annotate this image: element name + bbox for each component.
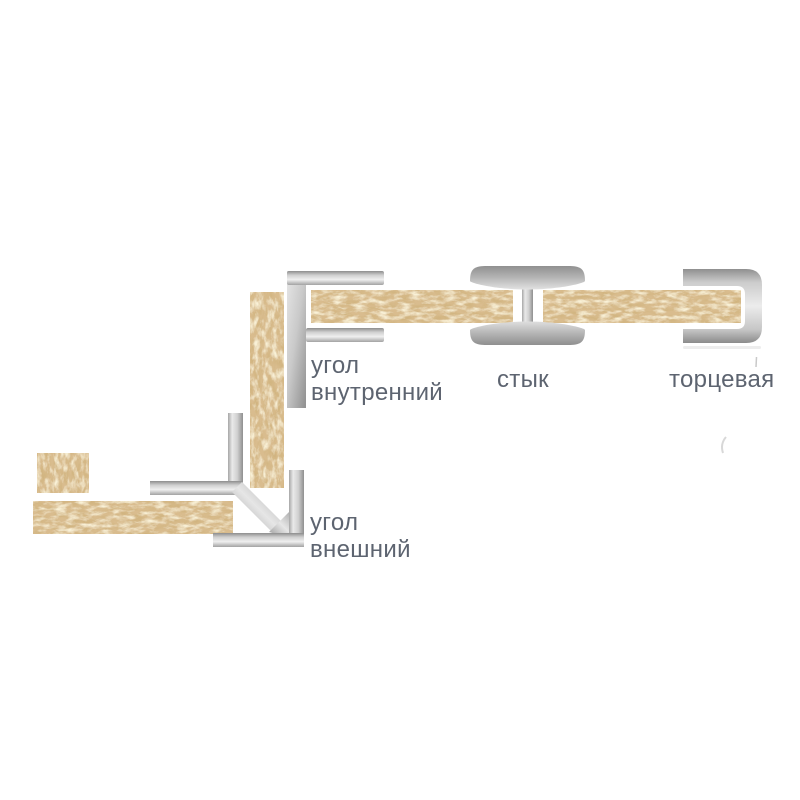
outer-corner-inner-horizontal-bar — [150, 481, 243, 495]
panel-top-right — [543, 290, 741, 323]
panel-vertical — [250, 292, 284, 488]
label-outer-corner-line1: угол — [310, 509, 411, 536]
inner-corner-stem — [287, 271, 306, 408]
label-joint: стык — [497, 366, 549, 393]
panel-top-left — [311, 290, 513, 323]
inner-corner-top-arm — [287, 271, 384, 285]
joint-bottom-flange — [470, 322, 585, 346]
outer-corner-outer-horizontal-bar — [213, 533, 304, 547]
faint-artifacts — [683, 346, 761, 453]
inner-corner-mid-arm — [306, 328, 384, 342]
label-inner-corner-line2: внутренний — [311, 379, 443, 406]
label-inner-corner-line1: угол — [311, 352, 443, 379]
label-outer-corner: угол внешний — [310, 509, 411, 563]
outer-corner-inner-vertical-bar — [228, 413, 243, 482]
diagram-stage: угол внутренний стык торцевая угол внешн… — [0, 0, 800, 800]
stray-curl-mark — [722, 437, 726, 453]
label-joint-line1: стык — [497, 366, 549, 393]
panel-bottom-block — [37, 453, 89, 493]
panel-bottom — [33, 501, 233, 534]
label-inner-corner: угол внутренний — [311, 352, 443, 406]
joint-top-flange — [470, 266, 585, 290]
label-outer-corner-line2: внешний — [310, 536, 411, 563]
chipboard-panels — [33, 290, 741, 534]
shadow-under-end-profile — [683, 346, 761, 349]
label-end-cap: торцевая — [669, 366, 774, 393]
label-end-cap-line1: торцевая — [669, 366, 774, 393]
